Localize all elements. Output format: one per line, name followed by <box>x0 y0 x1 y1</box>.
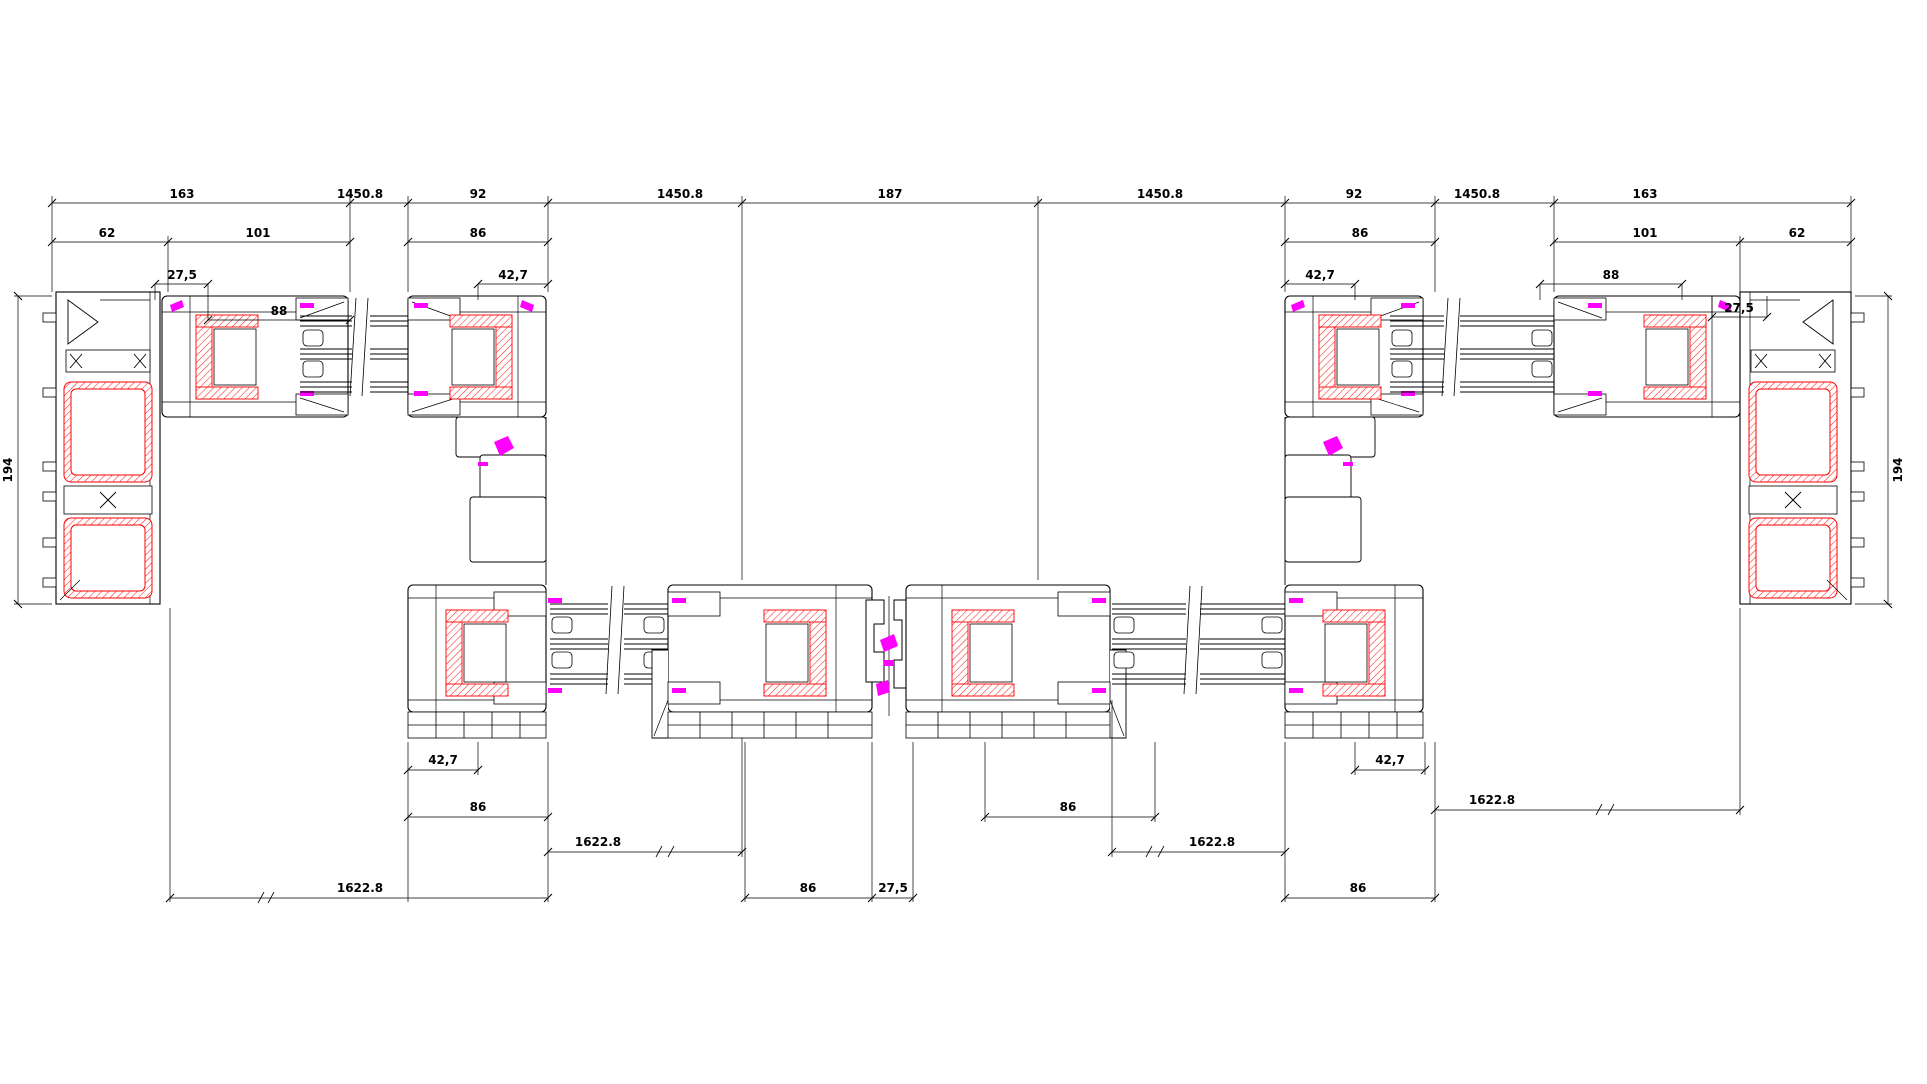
dim-label-top-1450-c: 1450.8 <box>1137 187 1183 201</box>
dim-label-86-bottom-right: 86 <box>1350 881 1367 895</box>
dim-label-275-top-left: 27,5 <box>167 268 197 282</box>
dim-label-top-163-right: 163 <box>1632 187 1657 201</box>
dim-label-1622-out-left: 1622.8 <box>337 881 383 895</box>
dim-label-88-left: 88 <box>271 304 288 318</box>
break-mark <box>350 298 356 396</box>
right-jamb-profile <box>1740 292 1864 604</box>
break-mark <box>1196 586 1202 694</box>
lower-left-meeting-sash <box>652 585 872 738</box>
frame-bottom-strip <box>906 712 1110 738</box>
glazing-lines <box>1200 604 1288 684</box>
dim-label-86-bottom-left: 86 <box>470 800 487 814</box>
dim-label-1622-mid-right: 1622.8 <box>1189 835 1235 849</box>
break-mark <box>1454 298 1460 396</box>
break-mark <box>1184 586 1190 694</box>
break-mark <box>362 298 368 396</box>
break-mark <box>606 586 612 694</box>
frame-bottom-strip <box>668 712 872 738</box>
dim-label-top-92-left: 92 <box>470 187 487 201</box>
dim-label-top-92-right: 92 <box>1346 187 1363 201</box>
dim-label-top-1450-b: 1450.8 <box>657 187 703 201</box>
dim-label-194-right: 194 <box>1891 457 1905 482</box>
jamb-steel-chamber <box>1749 518 1837 598</box>
dim-label-86-top-right: 86 <box>1352 226 1369 240</box>
dim-label-88-right: 88 <box>1603 268 1620 282</box>
glazing-lines <box>370 316 410 392</box>
dim-label-275-center: 27,5 <box>878 881 908 895</box>
dim-label-1622-mid-left: 1622.8 <box>575 835 621 849</box>
break-mark <box>618 586 624 694</box>
dim-label-86-top-left: 86 <box>470 226 487 240</box>
dim-label-86-center: 86 <box>800 881 817 895</box>
break-mark <box>258 804 1614 903</box>
jamb-steel-chamber <box>1749 382 1837 482</box>
dim-label-86-right-center: 86 <box>1060 800 1077 814</box>
dim-label-427-top-left: 42,7 <box>498 268 528 282</box>
window-section-drawing: 163 1450.8 92 1450.8 187 1450.8 92 1450.… <box>0 0 1927 1084</box>
dim-label-194-left: 194 <box>1 457 15 482</box>
left-jamb-profile <box>43 292 160 604</box>
frame-bottom-strip <box>1285 712 1423 738</box>
mullion-connector <box>1285 417 1375 585</box>
dim-label-101-left: 101 <box>245 226 270 240</box>
glazing-lines <box>550 604 608 684</box>
left-center-mullion-cluster <box>408 296 562 738</box>
dim-ticks <box>151 280 1771 324</box>
lower-right-meeting-sash <box>906 585 1126 738</box>
jamb-ribs <box>1851 313 1864 587</box>
dim-label-1622-out-right: 1622.8 <box>1469 793 1515 807</box>
dimension-labels: 163 1450.8 92 1450.8 187 1450.8 92 1450.… <box>1 187 1905 895</box>
dim-ticks <box>166 766 1744 902</box>
break-mark <box>1442 298 1448 396</box>
dim-label-62-left: 62 <box>99 226 116 240</box>
dim-label-top-1450-a: 1450.8 <box>337 187 383 201</box>
mullion-connector <box>456 417 546 585</box>
glazing-lines <box>1460 316 1556 392</box>
dim-label-275-top-right: 27,5 <box>1724 301 1754 315</box>
frame-bottom-strip <box>408 712 546 738</box>
dim-label-427-bottom-left: 42,7 <box>428 753 458 767</box>
dim-label-427-top-right: 42,7 <box>1305 268 1335 282</box>
dim-label-top-163-left: 163 <box>169 187 194 201</box>
dim-label-101-right: 101 <box>1632 226 1657 240</box>
lower-glazing-right <box>1112 586 1288 694</box>
center-interlock <box>866 596 912 716</box>
cad-drawing-canvas: 163 1450.8 92 1450.8 187 1450.8 92 1450.… <box>0 0 1927 1084</box>
dim-label-top-187: 187 <box>877 187 902 201</box>
jamb-ribs <box>43 313 56 587</box>
dim-label-top-1450-d: 1450.8 <box>1454 187 1500 201</box>
upper-left-sash-profile <box>162 296 348 417</box>
dim-label-62-right: 62 <box>1789 226 1806 240</box>
jamb-steel-chamber <box>64 382 152 482</box>
dim-label-427-bottom-right: 42,7 <box>1375 753 1405 767</box>
jamb-steel-chamber <box>64 518 152 598</box>
